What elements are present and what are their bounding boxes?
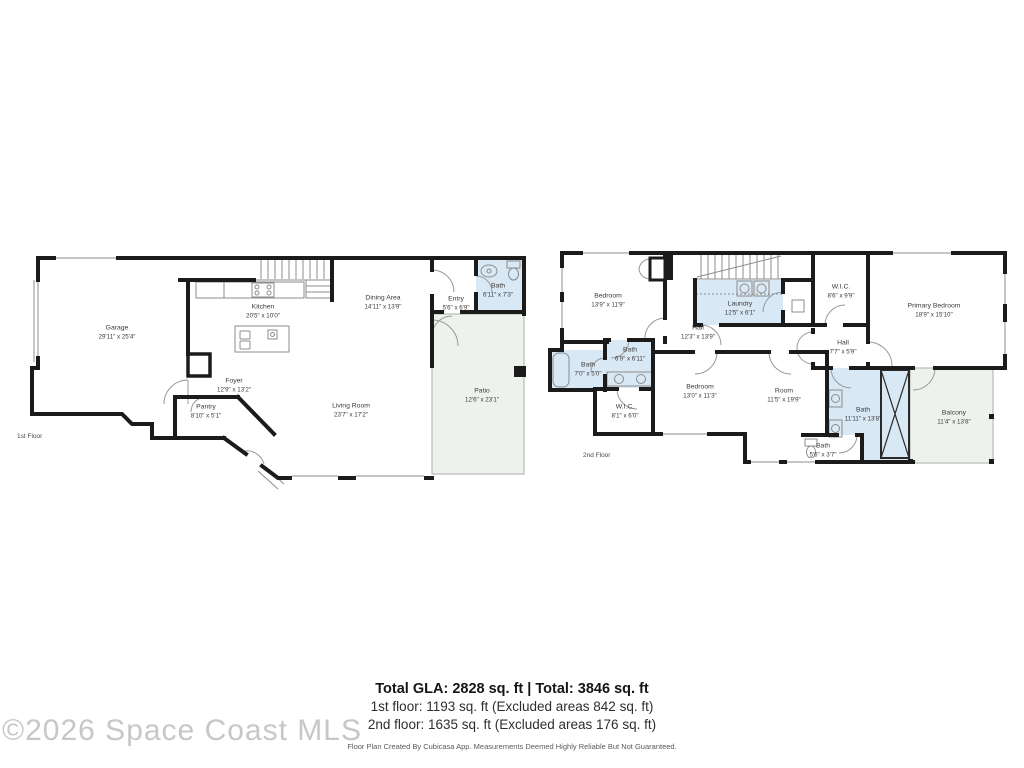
- closet-shelf-icon: [792, 300, 804, 312]
- room-label-bath-tiny: Bath 5'6" x 3'7": [809, 443, 836, 460]
- room-label-garage: Garage 29'11" x 25'4": [99, 325, 136, 342]
- stairs-icon: [254, 259, 332, 298]
- room-label-bath-shared: Bath 6'9" x 6'11": [615, 347, 645, 364]
- room-label-wic-small: W.I.C. 8'1" x 6'0": [611, 404, 638, 421]
- stairs-icon: [695, 255, 783, 279]
- room-label-kitchen: Kitchen 20'5" x 10'0": [246, 304, 280, 321]
- kitchen-island-icon: [235, 326, 289, 352]
- second-floor-area-line: 2nd floor: 1635 sq. ft (Excluded areas 1…: [0, 716, 1024, 734]
- room-label-dining-area: Dining Area 14'11" x 13'9": [365, 295, 402, 312]
- room-label-hall-main: Hall 12'3" x 13'9": [681, 325, 715, 342]
- room-label-wic-primary: W.I.C. 8'6" x 9'9": [827, 284, 854, 301]
- room-label-living-room: Living Room 23'7" x 17'2": [332, 403, 370, 420]
- disclaimer-line: Floor Plan Created By Cubicasa App. Meas…: [0, 742, 1024, 751]
- first-floor-caption: 1st Floor: [17, 433, 42, 440]
- room-label-balcony: Balcony 11'4" x 13'8": [937, 410, 970, 427]
- room-label-bedroom-2: Bedroom 13'0" x 11'3": [683, 384, 716, 401]
- room-label-hall-small: Hall 7'7" x 5'9": [829, 340, 856, 357]
- room-label-bath-1f: Bath 6'11" x 7'3": [483, 283, 513, 300]
- floorplan-page: Garage 29'11" x 25'4" Kitchen 20'5" x 10…: [0, 0, 1024, 768]
- area-summary: Total GLA: 2828 sq. ft | Total: 3846 sq.…: [0, 680, 1024, 751]
- room-label-primary-bedroom: Primary Bedroom 18'9" x 15'10": [908, 303, 961, 320]
- first-floor-plan: [28, 250, 528, 490]
- room-label-laundry: Laundry 12'5" x 6'1": [725, 301, 756, 318]
- room-label-bath-left: Bath 7'0" x 5'0": [574, 362, 601, 379]
- room-label-patio: Patio 12'6" x 23'1": [465, 388, 499, 405]
- room-label-room: Room 11'5" x 19'9": [767, 388, 800, 405]
- kitchen-counter-icon: [196, 282, 304, 298]
- first-floor-windows: [56, 254, 424, 480]
- total-gla-line: Total GLA: 2828 sq. ft | Total: 3846 sq.…: [0, 680, 1024, 698]
- second-floor-plan: [545, 248, 1010, 483]
- room-label-bedroom-1: Bedroom 13'9" x 11'9": [591, 293, 624, 310]
- room-label-primary-bath: Bath 11'11" x 13'8": [845, 407, 881, 424]
- first-floor-area-line: 1st floor: 1193 sq. ft (Excluded areas 8…: [0, 698, 1024, 716]
- room-label-entry: Entry 5'6" x 6'9": [442, 296, 469, 313]
- room-label-foyer: Foyer 12'9" x 13'2": [217, 378, 251, 395]
- second-floor-caption: 2nd Floor: [583, 452, 610, 459]
- room-label-pantry: Pantry 8'10" x 5'1": [191, 404, 222, 421]
